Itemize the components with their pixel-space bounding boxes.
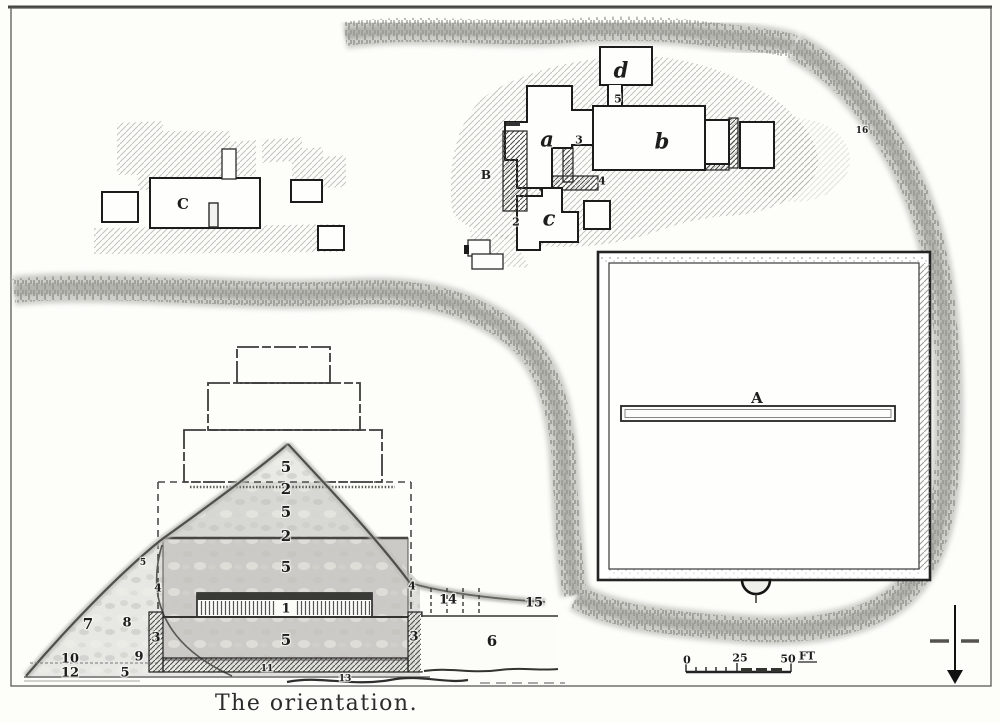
top-mound-band (345, 29, 794, 47)
plan-label-5: 5 (281, 503, 291, 521)
central-platform-bar (621, 406, 895, 421)
plan-label-12: 12 (61, 666, 79, 681)
plan-label-16: 16 (856, 126, 869, 136)
enclosure-a-group (598, 252, 930, 603)
plan-label-15: 15 (525, 596, 543, 611)
plan-label-3: 3 (575, 134, 583, 147)
temple-complex-group (451, 47, 850, 269)
ziggurat-group (20, 347, 565, 683)
plan-label-a: a (540, 127, 554, 152)
plan-label-B: B (481, 168, 491, 182)
plan-label-3: 3 (151, 631, 160, 646)
plan-label-5: 5 (120, 666, 129, 681)
plan-label-b: b (655, 129, 670, 154)
plan-label-6: 6 (487, 632, 497, 650)
plan-label-5: 5 (140, 558, 146, 568)
plan-label-9: 9 (134, 650, 143, 665)
tier-1 (237, 347, 330, 383)
north-arrow (930, 605, 979, 684)
plan-label-13: 13 (339, 674, 352, 684)
scale-mid-label: 25 (732, 652, 747, 665)
engraved-site-plan-figure: 0 25 50 FT CABabcd5342525251544337891012… (0, 0, 1000, 723)
scale-bar: 0 25 50 FT (683, 650, 817, 673)
plan-label-7: 7 (83, 615, 93, 633)
plan-label-10: 10 (61, 652, 79, 667)
room-c (150, 178, 260, 228)
plan-label-2: 2 (281, 480, 291, 498)
bottom-retaining-strip (163, 658, 408, 672)
arrow-head-icon (947, 670, 963, 684)
scale-unit-label: FT (799, 650, 816, 663)
plan-label-5: 5 (281, 558, 291, 576)
building-c-group (94, 121, 346, 254)
figure-caption: The orientation. (215, 691, 515, 716)
plan-label-C: C (177, 195, 189, 213)
plan-label-c: c (543, 206, 556, 231)
plan-label-5: 5 (614, 93, 622, 106)
plan-label-5: 5 (281, 458, 291, 476)
altar-mark (209, 203, 218, 227)
plan-label-2: 2 (512, 216, 520, 229)
scale-zero-label: 0 (683, 654, 691, 667)
plan-label-A: A (750, 389, 763, 407)
plan-label-11: 11 (261, 664, 274, 674)
casemate-b-strip (503, 131, 527, 211)
plan-label-d: d (614, 58, 629, 83)
plan-label-8: 8 (122, 616, 131, 631)
ground-line (287, 678, 468, 682)
plan-label-4: 4 (408, 580, 416, 593)
room-b (593, 106, 705, 170)
plan-label-1: 1 (281, 602, 290, 617)
plan-label-4: 4 (598, 175, 606, 188)
plan-label-4: 4 (154, 582, 162, 595)
scale-end-label: 50 (780, 653, 796, 666)
site-plan-svg: 0 25 50 FT CABabcd5342525251544337891012… (0, 0, 1000, 723)
plan-label-5: 5 (281, 631, 291, 649)
gate-apse (742, 580, 770, 594)
plan-label-2: 2 (281, 527, 291, 545)
plan-label-3: 3 (409, 630, 418, 645)
plan-label-14: 14 (439, 593, 457, 608)
tier-2 (208, 383, 360, 430)
